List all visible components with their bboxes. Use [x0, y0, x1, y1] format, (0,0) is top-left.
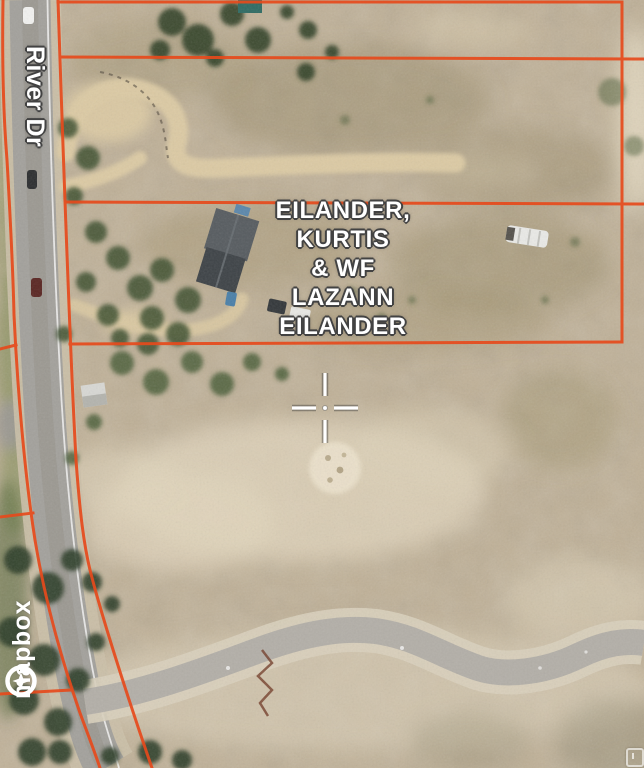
parcel-line-upper: [60, 57, 644, 59]
attribution-icon[interactable]: [626, 748, 644, 767]
satellite-map-canvas[interactable]: EILANDER, KURTIS & WF LAZANN EILANDER Ri…: [0, 0, 644, 768]
mapbox-logo-icon: [3, 663, 39, 699]
parcel-line-eilander-bottom: [70, 342, 622, 344]
satellite-imagery: [0, 0, 644, 768]
mapbox-logo[interactable]: mapbox: [3, 600, 41, 699]
parcel-line-eilander-top: [68, 202, 644, 204]
